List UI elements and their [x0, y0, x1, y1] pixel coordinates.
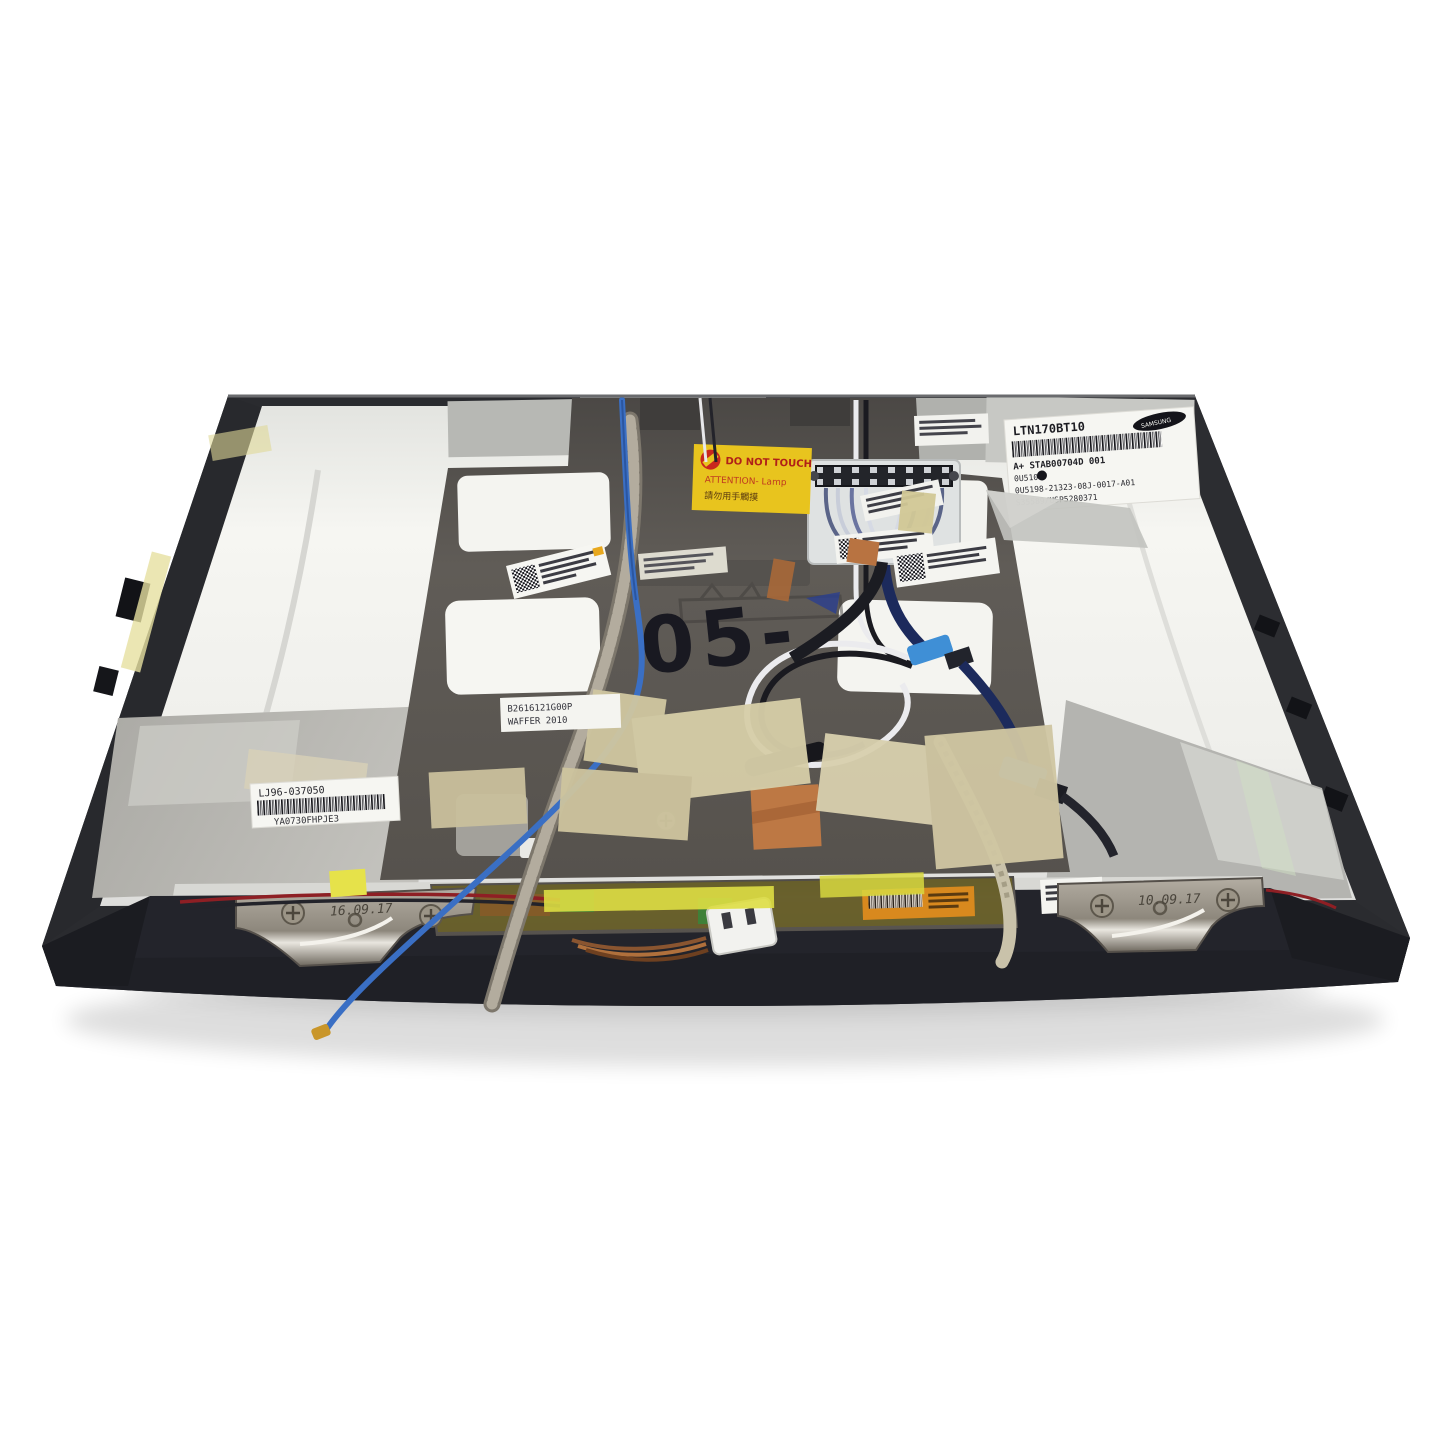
copper-tape-small	[846, 538, 879, 566]
lj96-label: LJ96-037050 YA0730FHPJE3	[250, 776, 400, 829]
warning-label: DO NOT TOUCH ATTENTION- Lamp 請勿用手觸摸	[692, 444, 813, 514]
hinge-right-screw-1	[1091, 895, 1113, 917]
bezel-left-notch-2	[93, 666, 119, 696]
product-photo: 05-	[0, 0, 1445, 1445]
waffer-label: B2616121G00P WAFFER 2010	[500, 694, 621, 732]
samsung-line-b: 0U510	[1014, 473, 1039, 484]
hinge-right-stamp: 10.09.17	[1138, 892, 1201, 909]
hinge-right-screw-2	[1217, 889, 1239, 911]
top-small-label	[914, 413, 989, 446]
waffer-line2: WAFFER 2010	[508, 716, 568, 728]
lcd-assembly-photo: 05-	[0, 0, 1445, 1445]
hinge-left-screw-1	[282, 902, 304, 924]
